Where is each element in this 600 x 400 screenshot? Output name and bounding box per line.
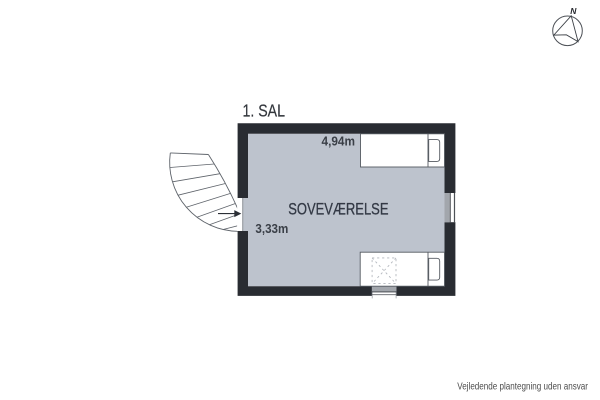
svg-text:3,33m: 3,33m — [255, 222, 288, 236]
svg-text:4,94m: 4,94m — [322, 135, 356, 149]
svg-text:1. SAL: 1. SAL — [243, 101, 286, 121]
svg-text:Vejledende plantegning uden an: Vejledende plantegning uden ansvar — [457, 381, 588, 393]
svg-text:N: N — [570, 6, 577, 16]
svg-text:SOVEVÆRELSE: SOVEVÆRELSE — [288, 201, 388, 219]
